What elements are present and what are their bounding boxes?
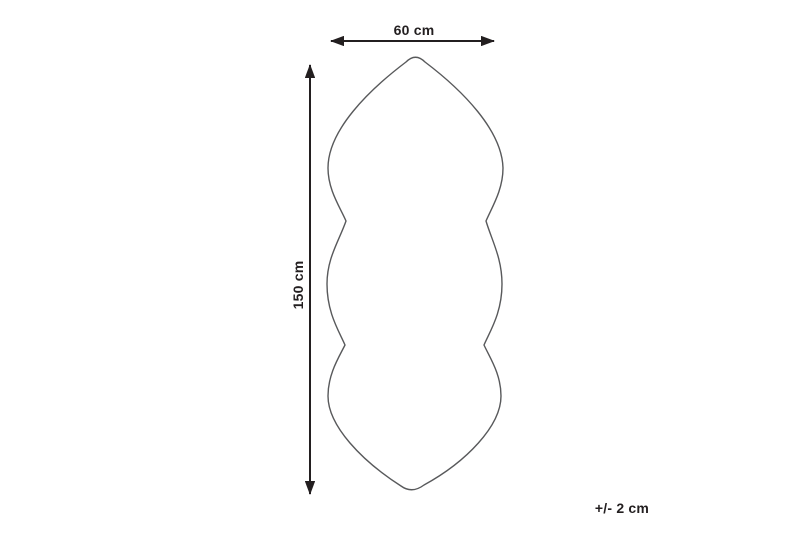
tolerance-label: +/- 2 cm bbox=[595, 500, 649, 516]
product-dimension-diagram: 60 cm 150 cm +/- 2 cm bbox=[0, 0, 800, 533]
diagram-canvas bbox=[0, 0, 800, 533]
height-dimension-label: 150 cm bbox=[290, 261, 306, 310]
rug-outline-shape bbox=[327, 57, 503, 490]
width-dimension-label: 60 cm bbox=[394, 22, 435, 38]
